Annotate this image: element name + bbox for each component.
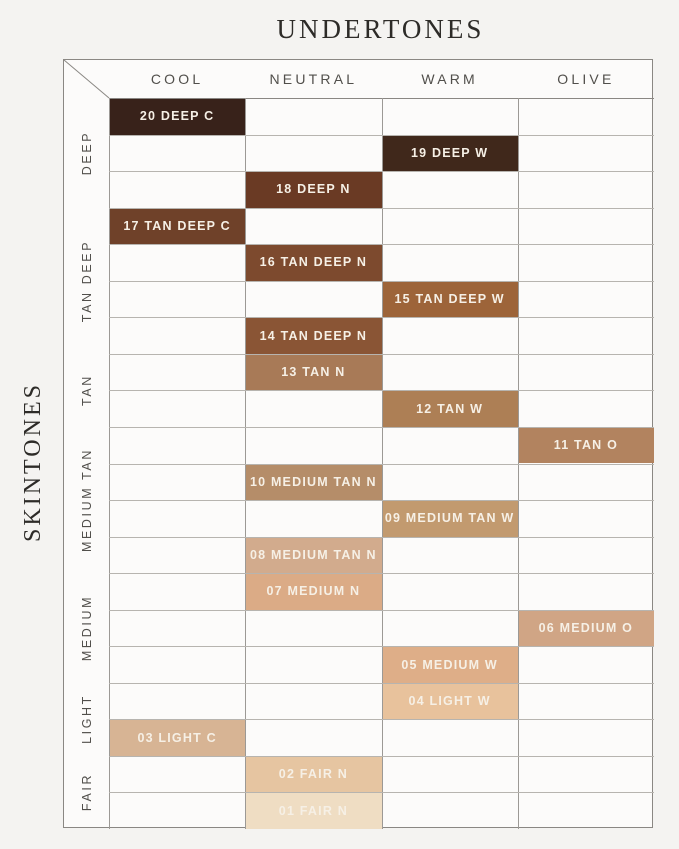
shade-cell-08-medium-tan-n: 08 MEDIUM TAN N [245, 537, 381, 574]
row-divider-line [109, 427, 654, 428]
shade-cell-01-fair-n: 01 FAIR N [245, 792, 381, 829]
row-divider-line [109, 683, 654, 684]
chart-title: UNDERTONES [108, 14, 653, 45]
shade-cell-19-deep-w: 19 DEEP W [382, 135, 518, 172]
shade-cell-06-medium-o: 06 MEDIUM O [518, 610, 654, 647]
row-divider-line [109, 719, 654, 720]
shade-cell-11-tan-o: 11 TAN O [518, 427, 654, 464]
shade-chart: UNDERTONES SKINTONES COOLNEUTRALWARMOLIV… [0, 0, 679, 849]
row-divider-line [109, 464, 654, 465]
shade-cell-17-tan-deep-c: 17 TAN DEEP C [109, 208, 245, 245]
row-divider-line [109, 390, 654, 391]
column-header-olive: OLIVE [518, 60, 654, 98]
shade-cell-18-deep-n: 18 DEEP N [245, 171, 381, 208]
shade-cell-07-medium-n: 07 MEDIUM N [245, 573, 381, 610]
row-group-label-fair: FAIR [77, 712, 97, 849]
row-divider-line [109, 756, 654, 757]
shade-cell-16-tan-deep-n: 16 TAN DEEP N [245, 244, 381, 281]
row-divider-line [109, 354, 654, 355]
shade-cell-02-fair-n: 02 FAIR N [245, 756, 381, 793]
corner-diagonal-line [64, 60, 110, 99]
row-divider-line [109, 281, 654, 282]
row-divider-line [109, 135, 654, 136]
row-divider-line [109, 500, 654, 501]
row-divider-line [109, 792, 654, 793]
row-divider-line [109, 208, 654, 209]
column-header-warm: WARM [382, 60, 518, 98]
shade-cell-13-tan-n: 13 TAN N [245, 354, 381, 391]
row-divider-line [109, 244, 654, 245]
shade-cell-12-tan-w: 12 TAN W [382, 390, 518, 427]
row-divider-line [109, 573, 654, 574]
column-header-cool: COOL [109, 60, 245, 98]
row-divider-line [109, 537, 654, 538]
row-divider-line [109, 646, 654, 647]
shade-cell-03-light-c: 03 LIGHT C [109, 719, 245, 756]
shade-cell-05-medium-w: 05 MEDIUM W [382, 646, 518, 683]
shade-cell-10-medium-tan-n: 10 MEDIUM TAN N [245, 464, 381, 501]
row-divider-line [109, 610, 654, 611]
shade-cell-14-tan-deep-n: 14 TAN DEEP N [245, 317, 381, 354]
shade-cell-20-deep-c: 20 DEEP C [109, 98, 245, 135]
row-divider-line [109, 171, 654, 172]
shade-table: COOLNEUTRALWARMOLIVE DEEPTAN DEEPTANMEDI… [63, 59, 653, 828]
shade-cell-04-light-w: 04 LIGHT W [382, 683, 518, 720]
shade-cell-15-tan-deep-w: 15 TAN DEEP W [382, 281, 518, 318]
shade-cell-09-medium-tan-w: 09 MEDIUM TAN W [382, 500, 518, 537]
row-divider-line [109, 317, 654, 318]
skintones-axis-label: SKINTONES [18, 362, 48, 562]
column-header-neutral: NEUTRAL [245, 60, 381, 98]
